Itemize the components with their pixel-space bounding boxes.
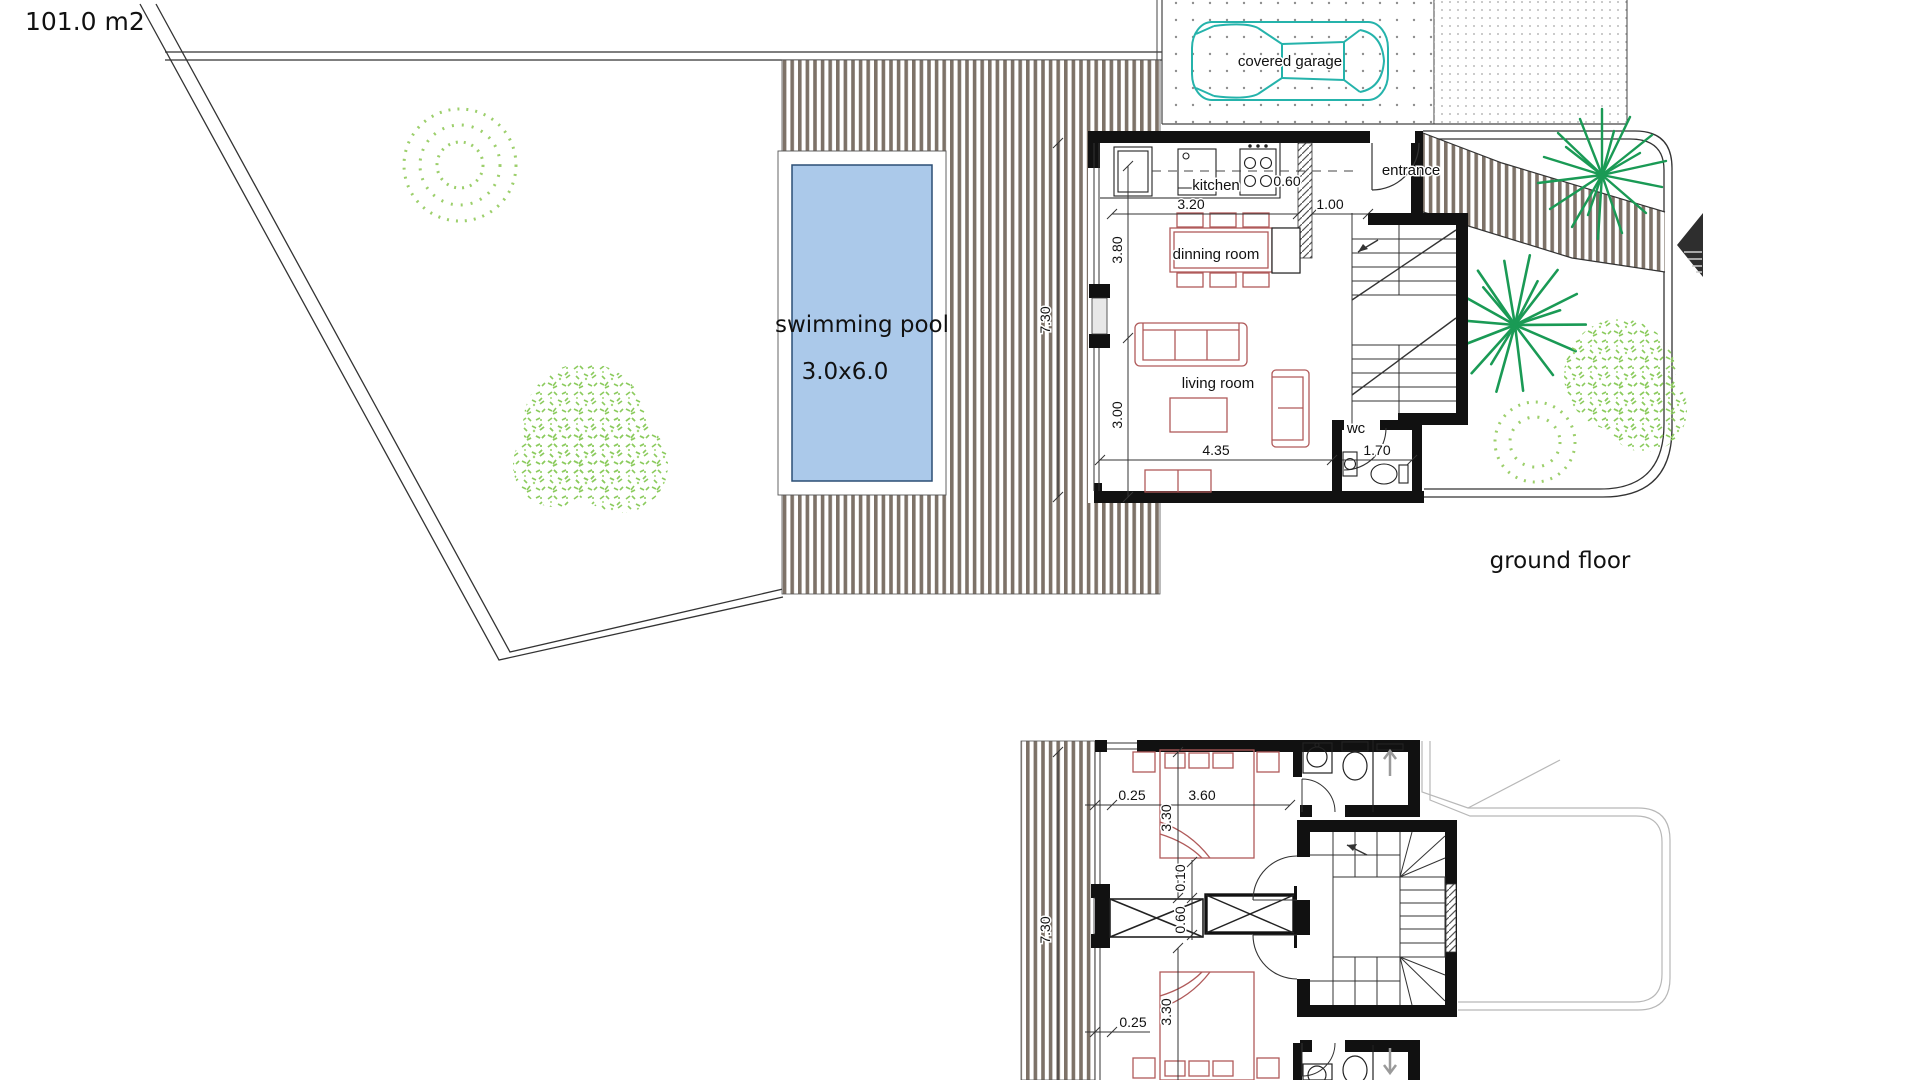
plot-outline-gray xyxy=(1422,741,1670,1010)
dim-kitchen-width: 3.20 xyxy=(1177,196,1204,212)
entrance-label: entrance xyxy=(1382,162,1440,179)
ground-floor-title: ground floor xyxy=(1490,548,1631,574)
shrub-right xyxy=(1564,319,1687,452)
stairs-ground xyxy=(1352,213,1468,425)
dim-hall-width: 1.00 xyxy=(1316,196,1343,212)
swimming-pool: swimming pool 3.0x6.0 xyxy=(775,151,949,495)
stair-window xyxy=(1446,884,1456,952)
dim-bed1-height: 3.30 xyxy=(1158,804,1174,831)
dim-living-height: 3.00 xyxy=(1109,401,1125,428)
dim-offset-top: 0.25 xyxy=(1118,787,1145,803)
floor-plan-drawing: swimming pool 3.0x6.0 covered garage xyxy=(0,0,1920,1080)
kitchen-label: kitchen xyxy=(1192,177,1240,194)
tree-dotted-right xyxy=(1495,402,1575,482)
dim-wardrobe-depth: 0.60 xyxy=(1172,906,1188,933)
boundary-triangle-marker xyxy=(1677,213,1703,277)
garage-label: covered garage xyxy=(1238,53,1342,70)
dim-deck-height-first: 7.30 xyxy=(1037,916,1053,943)
dim-bed2-height: 3.30 xyxy=(1158,998,1174,1025)
dim-wc-width: 1.70 xyxy=(1363,442,1390,458)
stairs-first xyxy=(1297,820,1457,1017)
wc-label: wc xyxy=(1346,420,1366,437)
dim-deck-height: 7.30 xyxy=(1037,306,1053,333)
shrub-left xyxy=(513,363,668,513)
dim-offset-bottom: 0.25 xyxy=(1119,1014,1146,1030)
pavement-dotted xyxy=(1434,0,1627,124)
pool-label: swimming pool xyxy=(775,312,949,338)
dim-gap: 0.10 xyxy=(1172,864,1188,891)
dim-dining-height: 3.80 xyxy=(1109,236,1125,263)
tree-dotted-left xyxy=(404,109,516,221)
dim-passage: 0.60 xyxy=(1273,173,1300,189)
dining-label: dinning room xyxy=(1173,246,1260,263)
dim-living-width: 4.35 xyxy=(1202,442,1229,458)
living-label: living room xyxy=(1182,375,1255,392)
area-label: 101.0 m2 xyxy=(25,7,145,36)
floor-plan-canvas: swimming pool 3.0x6.0 covered garage xyxy=(0,0,1920,1080)
dim-bed-width: 3.60 xyxy=(1188,787,1215,803)
kitchen-island xyxy=(1272,228,1300,273)
pool-size-label: 3.0x6.0 xyxy=(802,359,889,385)
